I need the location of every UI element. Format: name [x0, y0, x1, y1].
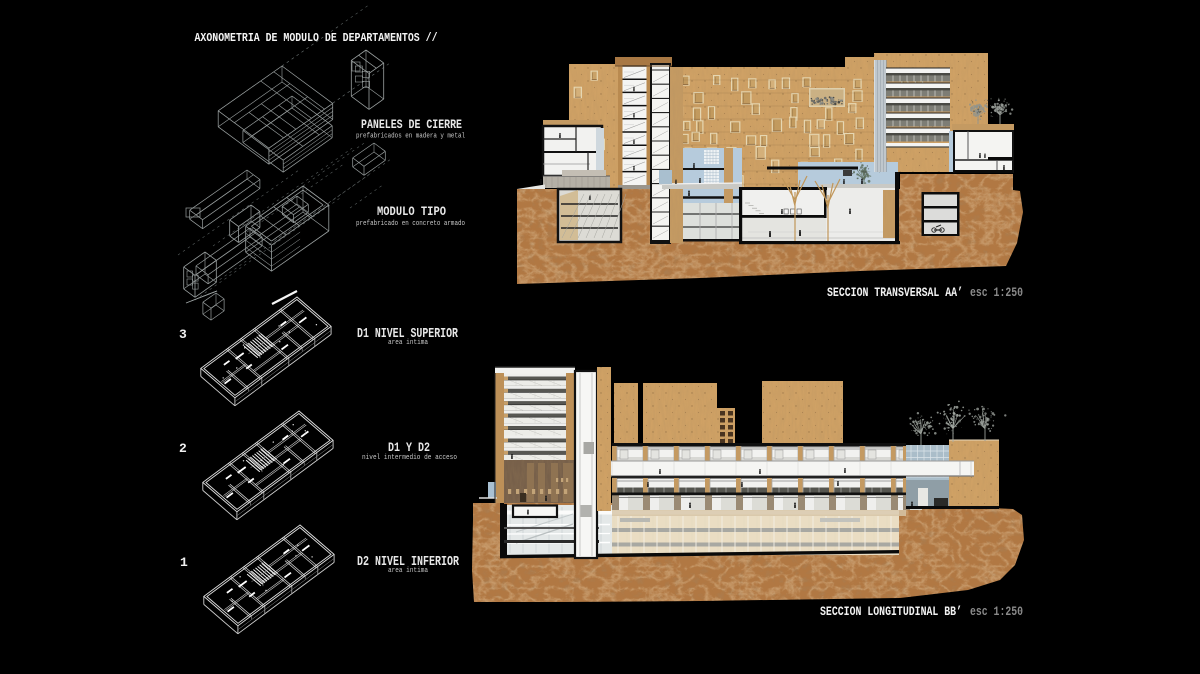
svg-text:nivel intermedio de acceso: nivel intermedio de acceso	[362, 454, 457, 462]
svg-text:SECCION TRANSVERSAL AA’: SECCION TRANSVERSAL AA’	[827, 285, 963, 300]
svg-text:esc 1:250: esc 1:250	[970, 285, 1023, 300]
svg-text:area intima: area intima	[388, 567, 428, 575]
svg-text:3: 3	[179, 327, 187, 342]
svg-text:prefabricados en madera y meta: prefabricados en madera y metal	[356, 133, 465, 141]
svg-text:1: 1	[180, 555, 188, 570]
svg-text:AXONOMETRIA DE MODULO DE DEPAR: AXONOMETRIA DE MODULO DE DEPARTAMENTOS /…	[195, 32, 438, 45]
svg-text:prefabricado en concreto armad: prefabricado en concreto armado	[356, 220, 465, 228]
svg-text:esc 1:250: esc 1:250	[970, 604, 1023, 619]
svg-text:D1 Y D2: D1 Y D2	[388, 440, 430, 455]
svg-text:MODULO TIPO: MODULO TIPO	[377, 204, 446, 219]
svg-text:SECCION LONGITUDINAL BB’: SECCION LONGITUDINAL BB’	[820, 604, 962, 619]
svg-text:area intima: area intima	[388, 339, 428, 347]
svg-text:PANELES DE CIERRE: PANELES DE CIERRE	[361, 117, 462, 132]
svg-text:2: 2	[179, 441, 187, 456]
